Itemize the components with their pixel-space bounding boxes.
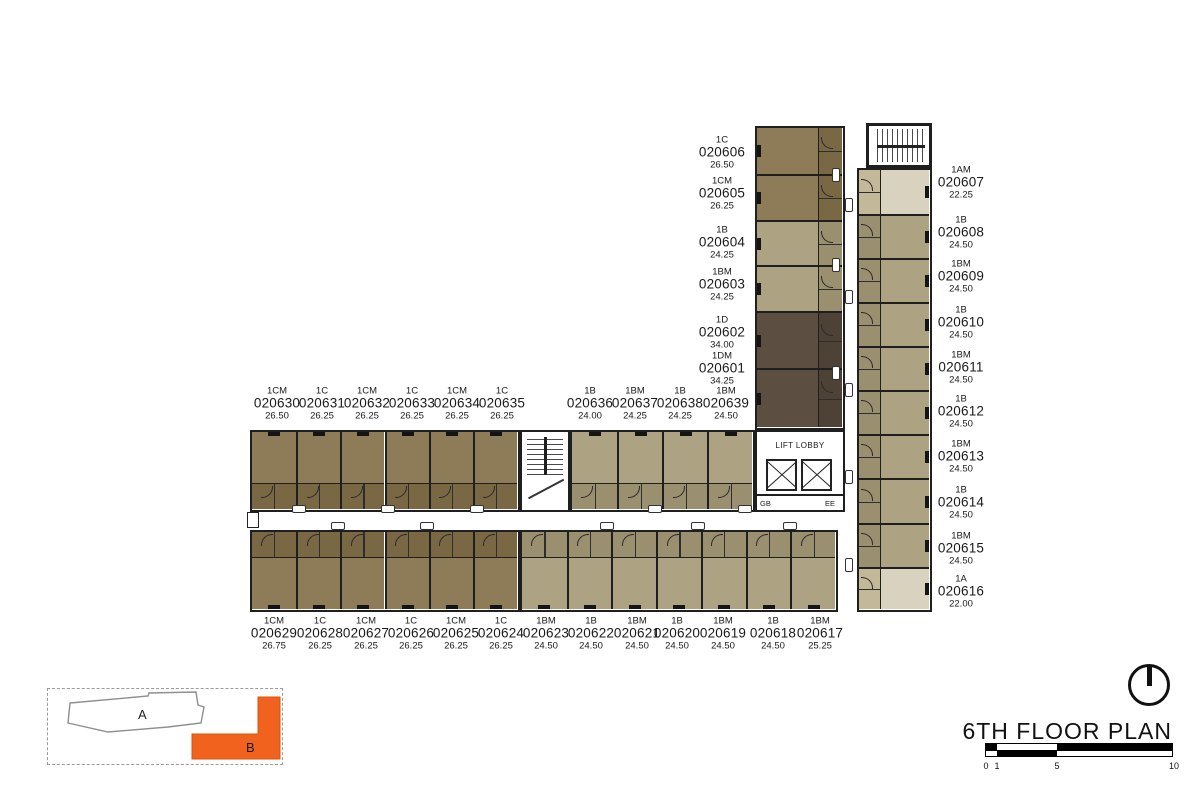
pod-partition	[635, 532, 636, 557]
unit-shape-020602	[757, 311, 842, 368]
vent-marker	[738, 505, 752, 513]
unit-label-020639: 1BM02063924.50	[703, 387, 749, 422]
lobby-wall	[757, 494, 843, 496]
vent-marker	[832, 366, 840, 380]
unit-number-label: 020630	[254, 397, 300, 411]
bathroom-pod	[859, 216, 881, 258]
door-marker	[925, 451, 929, 463]
unit-number-label: 020633	[389, 397, 435, 411]
unit-label-020632: 1CM02063226.25	[344, 387, 390, 422]
unit-shape-020601	[757, 368, 842, 427]
door-arc-icon	[351, 486, 363, 498]
unit-number-label: 020602	[699, 326, 745, 340]
unit-shape-020636	[572, 432, 617, 509]
north-compass-icon	[1128, 664, 1170, 706]
unit-shape-020605	[757, 174, 842, 220]
unit-label-020629: 1CM02062926.75	[251, 617, 297, 652]
door-marker	[538, 605, 550, 609]
unit-label-020603: 1BM02060324.25	[699, 268, 745, 303]
pod-partition	[319, 484, 320, 509]
unit-area-label: 26.25	[297, 641, 343, 652]
unit-area-label: 26.25	[343, 641, 389, 652]
door-marker	[757, 145, 761, 157]
door-marker	[357, 432, 369, 436]
door-marker	[757, 393, 761, 405]
unit-area-label: 26.25	[699, 201, 745, 212]
unit-area-label: 24.50	[938, 556, 984, 567]
door-marker	[757, 335, 761, 347]
bathroom-pod	[342, 532, 384, 558]
unit-number-label: 020623	[523, 627, 569, 641]
door-arc-icon	[577, 534, 589, 546]
door-arc-icon	[861, 533, 873, 545]
unit-label-020604: 1B02060424.25	[699, 226, 745, 261]
bathroom-pod	[252, 532, 296, 558]
bathroom-pod	[475, 532, 517, 558]
unit-area-label: 24.25	[699, 250, 745, 261]
unit-shape-020629	[252, 532, 296, 609]
door-marker	[490, 605, 502, 609]
door-arc-icon	[861, 179, 873, 191]
unit-label-020630: 1CM02063026.50	[254, 387, 300, 422]
unit-shape-020621	[611, 532, 656, 609]
pod-partition	[452, 484, 453, 509]
unit-area-label: 24.50	[938, 284, 984, 295]
unit-number-label: 020631	[299, 397, 345, 411]
door-marker	[446, 605, 458, 609]
bathroom-pod	[859, 525, 881, 567]
bathroom-pod	[859, 480, 881, 523]
door-marker	[757, 283, 761, 295]
pod-partition	[590, 532, 591, 557]
door-arc-icon	[483, 534, 495, 546]
bathroom-pod	[658, 532, 701, 558]
unit-area-label: 24.50	[938, 330, 984, 341]
door-arc-icon	[861, 444, 873, 456]
unit-shape-020617	[790, 532, 835, 609]
door-marker	[757, 192, 761, 204]
unit-label-020620: 1B02062024.50	[654, 617, 700, 652]
unit-area-label: 24.50	[654, 641, 700, 652]
vent-marker	[783, 522, 797, 530]
unit-label-020635: 1C02063526.25	[479, 387, 525, 422]
door-marker	[313, 605, 325, 609]
bathroom-pod	[748, 532, 791, 558]
ee-room-label: EE	[825, 499, 835, 508]
door-arc-icon	[821, 324, 833, 336]
unit-shape-020633	[385, 432, 429, 509]
unit-number-label: 020615	[938, 542, 984, 556]
pod-partition	[595, 484, 596, 509]
door-arc-icon	[861, 577, 873, 589]
unit-label-020602: 1D02060234.00	[699, 316, 745, 351]
unit-label-020607: 1AM02060722.25	[938, 166, 984, 201]
bathroom-pod	[859, 348, 881, 390]
unit-block	[250, 530, 520, 612]
vent-marker	[292, 505, 306, 513]
bathroom-pod	[818, 267, 842, 311]
unit-area-label: 24.50	[938, 375, 983, 386]
unit-number-label: 020639	[703, 397, 749, 411]
unit-shape-020619	[701, 532, 746, 609]
door-arc-icon	[622, 534, 634, 546]
door-arc-icon	[351, 534, 363, 546]
door-arc-icon	[821, 276, 833, 288]
unit-number-label: 020604	[699, 236, 745, 250]
pod-partition	[408, 484, 409, 509]
unit-number-label: 020635	[479, 397, 525, 411]
bathroom-pod	[569, 532, 612, 558]
unit-label-020616: 1A02061622.00	[938, 575, 984, 610]
unit-area-label: 26.25	[478, 641, 524, 652]
unit-area-label: 24.50	[568, 641, 614, 652]
bathroom-pod	[703, 532, 746, 558]
unit-shape-020612	[859, 390, 929, 434]
door-marker	[718, 605, 730, 609]
unit-shape-020624	[473, 532, 517, 609]
pod-partition	[819, 198, 842, 199]
bathroom-pod	[431, 483, 473, 509]
door-marker	[268, 432, 280, 436]
unit-label-020618: 1B02061824.50	[750, 617, 796, 652]
door-arc-icon	[718, 486, 730, 498]
unit-area-label: 24.50	[938, 510, 984, 521]
unit-number-label: 020637	[612, 397, 658, 411]
key-plan: A B	[47, 688, 283, 765]
unit-label-020625: 1CM02062526.25	[433, 617, 479, 652]
unit-shape-020635	[473, 432, 517, 509]
bathroom-pod	[522, 532, 567, 558]
bathroom-pod	[859, 392, 881, 434]
pod-partition	[859, 502, 880, 503]
unit-shape-020620	[656, 532, 701, 609]
door-marker	[925, 583, 929, 595]
unit-number-label: 020636	[567, 397, 613, 411]
unit-shape-020614	[859, 478, 929, 523]
unit-shape-020613	[859, 434, 929, 478]
door-arc-icon	[483, 486, 495, 498]
unit-shape-020603	[757, 265, 842, 311]
unit-block	[857, 168, 932, 612]
unit-shape-020637	[617, 432, 662, 509]
unit-area-label: 24.50	[938, 419, 984, 430]
keyplan-building-b	[192, 697, 280, 759]
unit-label-020638: 1B02063824.25	[657, 387, 703, 422]
unit-label-020623: 1BM02062324.50	[523, 617, 569, 652]
door-arc-icon	[861, 268, 873, 280]
door-arc-icon	[395, 534, 407, 546]
unit-number-label: 020612	[938, 405, 984, 419]
door-arc-icon	[261, 534, 273, 546]
unit-label-020631: 1C02063126.25	[299, 387, 345, 422]
unit-shape-020623	[522, 532, 567, 609]
unit-area-label: 24.50	[523, 641, 569, 652]
unit-label-020619: 1BM02061924.50	[700, 617, 746, 652]
unit-shape-020606	[757, 128, 842, 174]
vent-marker	[845, 383, 853, 397]
unit-number-label: 020610	[938, 316, 984, 330]
scale-tick: 0	[983, 761, 988, 771]
unit-area-label: 24.25	[612, 411, 658, 422]
door-arc-icon	[673, 486, 685, 498]
door-marker	[490, 432, 502, 436]
pod-partition	[679, 532, 680, 557]
vent-marker	[845, 558, 853, 572]
pod-partition	[641, 484, 642, 509]
pod-partition	[859, 237, 880, 238]
vent-marker	[470, 505, 484, 513]
north-tick	[1147, 666, 1152, 686]
scale-bar: 0 1 5 10	[985, 743, 1173, 757]
vent-marker	[832, 168, 840, 182]
door-arc-icon	[861, 400, 873, 412]
door-arc-icon	[861, 224, 873, 236]
unit-number-label: 020627	[343, 627, 389, 641]
bathroom-pod	[387, 532, 429, 558]
door-arc-icon	[439, 534, 451, 546]
door-arc-icon	[821, 231, 833, 243]
pod-partition	[408, 532, 409, 557]
unit-area-label: 26.25	[434, 411, 480, 422]
lift-shaft-icon	[801, 459, 832, 491]
unit-label-020614: 1B02061424.50	[938, 486, 984, 521]
pod-partition	[859, 546, 880, 547]
unit-number-label: 020605	[699, 187, 745, 201]
pod-partition	[859, 369, 880, 370]
lift-shaft-icon	[766, 459, 797, 491]
door-marker	[402, 605, 414, 609]
door-marker	[925, 275, 929, 287]
unit-area-label: 34.00	[699, 340, 745, 351]
unit-area-label: 24.50	[938, 464, 984, 475]
unit-shape-020625	[429, 532, 473, 609]
unit-label-020611: 1BM02061124.50	[938, 351, 983, 386]
unit-label-020615: 1BM02061524.50	[938, 532, 984, 567]
vent-marker	[331, 522, 345, 530]
vent-marker	[648, 505, 662, 513]
unit-shape-020608	[859, 214, 929, 258]
pod-partition	[724, 532, 725, 557]
bathroom-pod	[859, 170, 881, 214]
vent-marker	[691, 522, 705, 530]
floor-plan: LIFT LOBBY GB EE 1C02060626.501CM0206052…	[0, 0, 1200, 800]
door-arc-icon	[667, 534, 679, 546]
unit-number-label: 020629	[251, 627, 297, 641]
unit-area-label: 24.00	[567, 411, 613, 422]
unit-area-label: 24.50	[750, 641, 796, 652]
door-marker	[925, 407, 929, 419]
door-marker	[584, 605, 596, 609]
door-marker	[635, 432, 647, 436]
pod-partition	[769, 532, 770, 557]
stair-rail	[544, 437, 547, 475]
unit-shape-020631	[296, 432, 340, 509]
door-marker	[925, 540, 929, 552]
unit-block	[250, 430, 520, 512]
unit-area-label: 24.50	[700, 641, 746, 652]
pod-partition	[819, 341, 842, 342]
bathroom-pod	[818, 176, 842, 220]
pod-partition	[496, 532, 497, 557]
unit-number-label: 020626	[388, 627, 434, 641]
unit-number-label: 020622	[568, 627, 614, 641]
unit-label-020617: 1BM02061725.25	[797, 617, 843, 652]
pod-partition	[859, 589, 880, 590]
pod-partition	[363, 532, 364, 557]
vent-marker	[600, 522, 614, 530]
stairwell-mid	[520, 430, 570, 512]
unit-shape-020611	[859, 346, 929, 390]
unit-number-label: 020632	[344, 397, 390, 411]
bathroom-pod	[818, 313, 842, 368]
unit-number-label: 020616	[938, 585, 984, 599]
unit-shape-020616	[859, 567, 929, 609]
corridor-end-cap	[247, 512, 259, 528]
keyplan-building-a	[68, 692, 204, 732]
pod-partition	[819, 289, 842, 290]
unit-shape-020639	[707, 432, 752, 509]
unit-number-label: 020624	[478, 627, 524, 641]
unit-number-label: 020608	[938, 226, 984, 240]
bathroom-pod	[664, 483, 707, 509]
pod-partition	[859, 281, 880, 282]
door-marker	[680, 432, 692, 436]
unit-area-label: 26.25	[299, 411, 345, 422]
unit-number-label: 020620	[654, 627, 700, 641]
unit-number-label: 020618	[750, 627, 796, 641]
unit-number-label: 020611	[938, 361, 983, 375]
unit-shape-020638	[662, 432, 707, 509]
unit-block	[520, 530, 838, 612]
unit-label-020627: 1CM02062726.25	[343, 617, 389, 652]
unit-area-label: 26.25	[389, 411, 435, 422]
unit-area-label: 26.25	[479, 411, 525, 422]
unit-shape-020626	[385, 532, 429, 609]
unit-shape-020615	[859, 523, 929, 567]
unit-area-label: 24.50	[938, 240, 984, 251]
vent-marker	[381, 505, 395, 513]
door-arc-icon	[861, 312, 873, 324]
pod-partition	[686, 484, 687, 509]
unit-label-020613: 1BM02061324.50	[938, 440, 984, 475]
unit-shape-020604	[757, 220, 842, 265]
door-arc-icon	[628, 486, 640, 498]
scale-tick: 1	[994, 761, 999, 771]
door-arc-icon	[261, 486, 273, 498]
unit-label-020624: 1C02062426.25	[478, 617, 524, 652]
unit-area-label: 22.25	[938, 190, 984, 201]
unit-label-020610: 1B02061024.50	[938, 306, 984, 341]
unit-label-020601: 1DM02060134.25	[699, 352, 745, 387]
door-marker	[725, 432, 737, 436]
bathroom-pod	[859, 260, 881, 302]
door-arc-icon	[581, 486, 593, 498]
unit-area-label: 26.50	[254, 411, 300, 422]
pod-partition	[319, 532, 320, 557]
door-marker	[925, 319, 929, 331]
unit-shape-020610	[859, 302, 929, 346]
door-arc-icon	[307, 486, 319, 498]
pod-partition	[819, 399, 842, 400]
door-marker	[629, 605, 641, 609]
unit-number-label: 020625	[433, 627, 479, 641]
vent-marker	[845, 470, 853, 484]
bathroom-pod	[572, 483, 617, 509]
unit-area-label: 24.25	[699, 292, 745, 303]
stair-arrow	[528, 479, 564, 499]
bathroom-pod	[252, 483, 296, 509]
door-marker	[402, 432, 414, 436]
door-arc-icon	[307, 534, 319, 546]
unit-label-020606: 1C02060626.50	[699, 136, 745, 171]
pod-partition	[819, 151, 842, 152]
vent-marker	[845, 198, 853, 212]
unit-label-020634: 1CM02063426.25	[434, 387, 480, 422]
floor-plan-page: LIFT LOBBY GB EE 1C02060626.501CM0206052…	[0, 0, 1200, 800]
door-marker	[925, 231, 929, 243]
unit-label-020608: 1B02060824.50	[938, 216, 984, 251]
door-arc-icon	[439, 486, 451, 498]
pod-partition	[731, 484, 732, 509]
unit-number-label: 020628	[297, 627, 343, 641]
keyplan-a-label: A	[138, 707, 147, 722]
unit-area-label: 26.25	[344, 411, 390, 422]
pod-partition	[452, 532, 453, 557]
door-marker	[357, 605, 369, 609]
keyplan-b-label: B	[246, 740, 255, 755]
door-marker	[313, 432, 325, 436]
unit-shape-020632	[340, 432, 384, 509]
unit-number-label: 020617	[797, 627, 843, 641]
unit-number-label: 020614	[938, 496, 984, 510]
bathroom-pod	[613, 532, 656, 558]
unit-area-label: 24.50	[703, 411, 749, 422]
page-title: 6TH FLOOR PLAN	[962, 718, 1172, 745]
stairwell-top-right	[866, 123, 932, 168]
scale-tick: 10	[1169, 761, 1179, 771]
door-marker	[925, 186, 929, 198]
bathroom-pod	[859, 304, 881, 346]
unit-label-020633: 1C02063326.25	[389, 387, 435, 422]
door-arc-icon	[801, 534, 813, 546]
unit-block	[570, 430, 755, 512]
door-marker	[446, 432, 458, 436]
vent-marker	[845, 290, 853, 304]
unit-label-020637: 1BM02063724.25	[612, 387, 658, 422]
door-marker	[268, 605, 280, 609]
door-marker	[925, 363, 929, 375]
door-arc-icon	[821, 185, 833, 197]
unit-label-020636: 1B02063624.00	[567, 387, 613, 422]
pod-partition	[363, 484, 364, 509]
gb-room-label: GB	[760, 499, 771, 508]
vent-marker	[420, 522, 434, 530]
unit-area-label: 26.75	[251, 641, 297, 652]
pod-partition	[859, 457, 880, 458]
unit-number-label: 020607	[938, 176, 984, 190]
scale-segment	[997, 751, 1057, 756]
unit-area-label: 26.50	[699, 160, 745, 171]
unit-label-020612: 1B02061224.50	[938, 395, 984, 430]
unit-label-020605: 1CM02060526.25	[699, 177, 745, 212]
key-plan-graphic: A B	[48, 689, 282, 764]
unit-shape-020609	[859, 258, 929, 302]
unit-area-label: 25.25	[797, 641, 843, 652]
pod-partition	[859, 413, 880, 414]
unit-label-020609: 1BM02060924.50	[938, 260, 984, 295]
unit-shape-020634	[429, 432, 473, 509]
unit-label-020622: 1B02062224.50	[568, 617, 614, 652]
